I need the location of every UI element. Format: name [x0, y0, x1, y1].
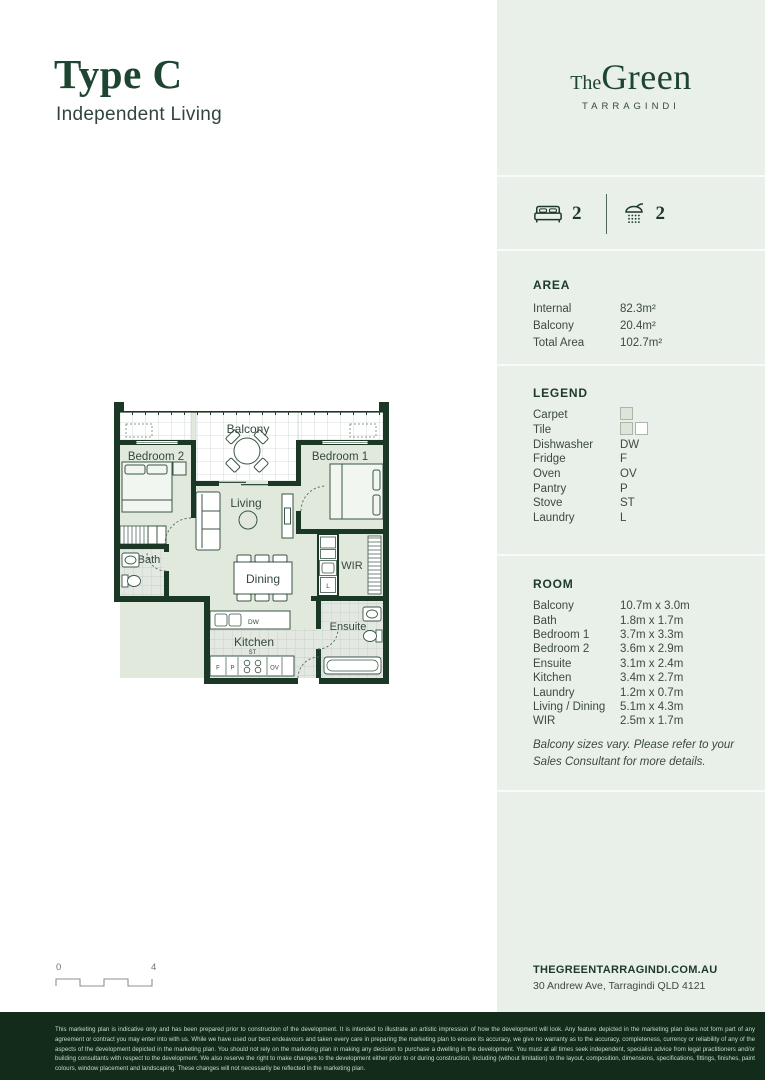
bath-count: 2	[656, 203, 666, 225]
legend-row: FridgeF	[533, 452, 743, 467]
area-row: Total Area102.7m²	[533, 334, 743, 351]
label-stove: ST	[249, 650, 257, 656]
floor-plan: Balcony Bedroom 2 Bedroom 1 Living Dinin…	[106, 396, 398, 696]
room-row: Bath1.8m x 1.7m	[533, 613, 743, 627]
legend-section: LEGEND Carpet Tile DishwasherDW FridgeF …	[533, 386, 743, 526]
divider	[497, 554, 765, 556]
bathtub	[324, 657, 381, 674]
brand-green: Green	[601, 57, 691, 97]
legend-row: PantryP	[533, 481, 743, 496]
label-dining: Dining	[246, 572, 280, 586]
label-bath: Bath	[138, 554, 161, 566]
room-heading: ROOM	[533, 577, 743, 591]
room-row: Ensuite3.1m x 2.4m	[533, 657, 743, 671]
shower-icon	[621, 202, 647, 226]
footer-bar: This marketing plan is indicative only a…	[0, 1012, 765, 1080]
bedroom1-furniture	[330, 464, 383, 519]
legend-row: Tile	[533, 423, 743, 438]
street-address: 30 Andrew Ave, Tarragindi QLD 4121	[533, 980, 718, 992]
area-section: AREA Internal82.3m² Balcony20.4m² Total …	[533, 278, 743, 351]
legend-row: StoveST	[533, 496, 743, 511]
brand-tagline: TARRAGINDI	[497, 101, 765, 112]
wir-hanging-rail	[368, 536, 381, 594]
room-row: Bedroom 23.6m x 2.9m	[533, 642, 743, 656]
label-ensuite: Ensuite	[330, 621, 367, 633]
legend-row: Carpet	[533, 408, 743, 423]
sidebar: TheGreen TARRAGINDI 2	[497, 0, 765, 1012]
stats-divider	[606, 194, 607, 234]
room-row: Kitchen3.4m x 2.7m	[533, 671, 743, 685]
divider	[497, 364, 765, 366]
label-living: Living	[230, 496, 261, 510]
room-row: Bedroom 13.7m x 3.3m	[533, 628, 743, 642]
balcony-note: Balcony sizes vary. Please refer to your…	[533, 737, 745, 771]
scale-end: 4	[151, 962, 156, 973]
tile-swatch-white	[635, 422, 648, 435]
room-section: ROOM Balcony10.7m x 3.0m Bath1.8m x 1.7m…	[533, 577, 743, 729]
bed-count: 2	[572, 203, 582, 225]
bed-icon	[533, 203, 563, 225]
area-heading: AREA	[533, 278, 743, 292]
label-oven: OV	[270, 666, 279, 672]
label-bedroom1: Bedroom 1	[312, 451, 368, 463]
carpet-swatch	[620, 407, 633, 420]
area-row: Internal82.3m²	[533, 300, 743, 317]
divider	[497, 249, 765, 251]
tile-swatch-gray	[620, 422, 633, 435]
label-bedroom2: Bedroom 2	[128, 451, 184, 463]
website-url: THEGREENTARRAGINDI.COM.AU	[533, 964, 718, 976]
marketing-plan-page: Type C Independent Living	[0, 0, 765, 1080]
label-balcony: Balcony	[227, 422, 270, 436]
brand-the: The	[570, 72, 601, 94]
area-row: Balcony20.4m²	[533, 317, 743, 334]
room-row: Living / Dining5.1m x 4.3m	[533, 700, 743, 714]
brand-logo: TheGreen	[497, 56, 765, 98]
page-title: Type C	[54, 50, 183, 98]
scale-bar: 0 4	[53, 958, 163, 999]
label-pantry: P	[230, 666, 234, 672]
bed-bath-stats: 2 2	[533, 192, 675, 236]
label-dishwasher: DW	[248, 619, 260, 626]
legend-row: LaundryL	[533, 511, 743, 526]
scale-ruler	[56, 979, 152, 986]
divider	[497, 790, 765, 792]
disclaimer-text: This marketing plan is indicative only a…	[55, 1025, 755, 1074]
kitchen-bench	[210, 656, 294, 676]
contact-block: THEGREENTARRAGINDI.COM.AU 30 Andrew Ave,…	[533, 964, 718, 992]
label-kitchen: Kitchen	[234, 635, 274, 649]
legend-row: OvenOV	[533, 467, 743, 482]
divider	[497, 175, 765, 177]
scale-start: 0	[56, 962, 61, 973]
legend-row: DishwasherDW	[533, 437, 743, 452]
room-row: WIR2.5m x 1.7m	[533, 714, 743, 728]
room-row: Laundry1.2m x 0.7m	[533, 685, 743, 699]
label-laundry: L	[326, 583, 330, 590]
label-wir: WIR	[341, 560, 362, 572]
legend-heading: LEGEND	[533, 386, 743, 400]
sink	[215, 614, 227, 626]
page-subtitle: Independent Living	[56, 104, 222, 126]
floor-plan-svg: Balcony Bedroom 2 Bedroom 1 Living Dinin…	[106, 396, 398, 696]
label-fridge: F	[216, 666, 220, 672]
room-row: Balcony10.7m x 3.0m	[533, 599, 743, 613]
